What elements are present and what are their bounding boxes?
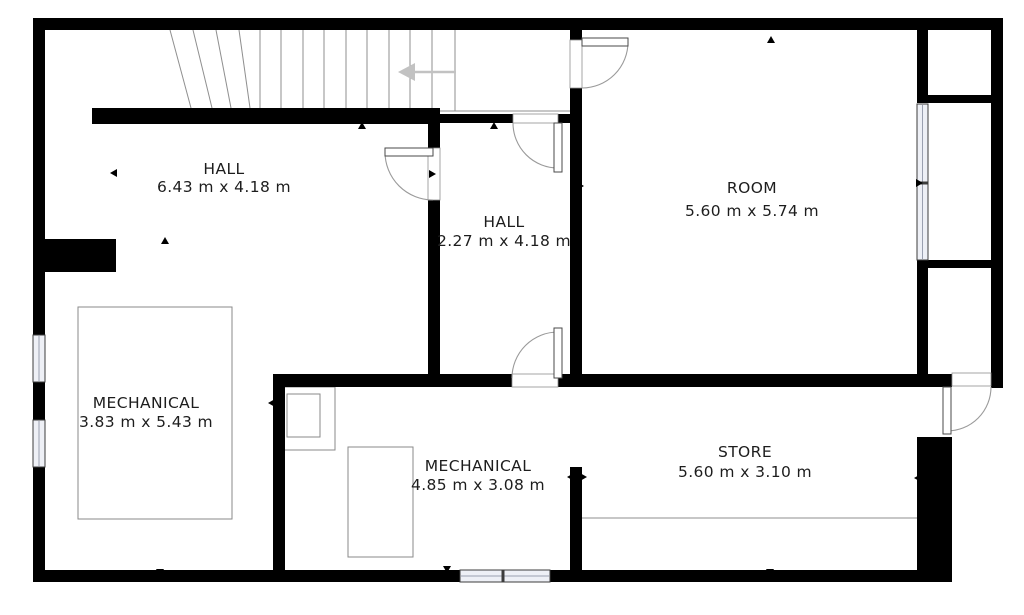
wall-segment <box>570 467 582 582</box>
wall-segment <box>917 268 928 387</box>
wall-segment <box>92 108 433 124</box>
wall-segment <box>428 114 513 123</box>
room-dimensions-label: 3.83 m x 5.43 m <box>79 413 213 431</box>
wall-segment <box>33 18 1003 30</box>
door-opening <box>570 40 582 88</box>
room-label-group: MECHANICAL3.83 m x 5.43 m <box>79 394 213 431</box>
wall-segment <box>558 374 952 387</box>
door-leaf <box>385 148 433 156</box>
door-leaf <box>554 328 562 378</box>
wall-segment <box>428 108 440 148</box>
wall-segment <box>273 374 512 387</box>
window <box>33 420 45 467</box>
wall-segment <box>917 95 1003 103</box>
wall-segment <box>570 88 582 387</box>
room-name-label: ROOM <box>727 179 777 197</box>
room-dimensions-label: 4.85 m x 3.08 m <box>411 476 545 494</box>
floor-plan-svg: HALL6.43 m x 4.18 mHALL2.27 m x 4.18 mRO… <box>0 0 1024 615</box>
wall-segment <box>33 467 45 582</box>
window <box>460 570 550 582</box>
room-dimensions-label: 5.60 m x 3.10 m <box>678 463 812 481</box>
room-dimensions-label: 6.43 m x 4.18 m <box>157 178 291 196</box>
door-leaf <box>943 387 951 434</box>
room-name-label: HALL <box>203 160 244 178</box>
wall-segment <box>991 18 1003 388</box>
wall-segment <box>33 570 460 582</box>
equipment-outline <box>348 447 413 557</box>
room-name-label: MECHANICAL <box>425 457 531 475</box>
wall-segment <box>917 30 928 95</box>
room-label-group: MECHANICAL4.85 m x 3.08 m <box>411 457 545 494</box>
window <box>33 335 45 382</box>
wall-segment <box>428 200 440 387</box>
room-name-label: MECHANICAL <box>93 394 199 412</box>
wall-segment <box>550 570 952 582</box>
door-leaf <box>582 38 628 46</box>
equipment-outline <box>287 394 320 437</box>
wall-segment <box>33 18 45 335</box>
room-dimensions-label: 5.60 m x 5.74 m <box>685 202 819 220</box>
room-dimensions-label: 2.27 m x 4.18 m <box>437 232 571 250</box>
door-opening <box>512 374 558 387</box>
door-leaf <box>554 123 562 172</box>
door-opening <box>952 373 991 386</box>
wall-segment <box>917 437 952 582</box>
door-opening <box>513 114 558 123</box>
room-name-label: STORE <box>718 443 772 461</box>
wall-segment <box>33 239 116 272</box>
wall-segment <box>570 30 582 40</box>
wall-segment <box>917 260 1003 268</box>
room-name-label: HALL <box>483 213 524 231</box>
floor-plan: HALL6.43 m x 4.18 mHALL2.27 m x 4.18 mRO… <box>0 0 1024 615</box>
